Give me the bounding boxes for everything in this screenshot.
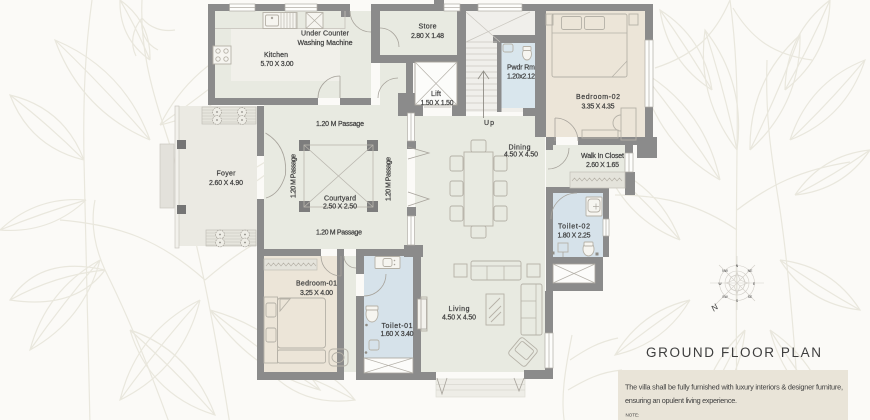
svg-text:Kitchen: Kitchen	[264, 52, 288, 59]
svg-text:SE: SE	[748, 295, 753, 299]
svg-text:2.80 X 1.48: 2.80 X 1.48	[411, 33, 444, 40]
svg-text:2.60 X 1.65: 2.60 X 1.65	[586, 162, 619, 169]
svg-text:1.20 M Passage: 1.20 M Passage	[316, 121, 364, 128]
svg-text:Toilet-02: Toilet-02	[558, 224, 590, 231]
svg-text:Dining: Dining	[509, 144, 531, 151]
svg-text:The villa shall be fully furni: The villa shall be fully furnished with …	[625, 383, 843, 392]
svg-text:ensuring an opulent living exp: ensuring an opulent living experience.	[625, 396, 737, 405]
svg-text:1.20 M Passage: 1.20 M Passage	[386, 157, 393, 201]
svg-text:Courtyard: Courtyard	[324, 196, 356, 203]
svg-text:Washing Machine: Washing Machine	[298, 40, 353, 47]
svg-text:2.50 X 2.50: 2.50 X 2.50	[323, 204, 357, 211]
svg-text:NE: NE	[748, 269, 753, 273]
svg-text:NOTE:: NOTE:	[626, 413, 640, 418]
svg-text:Pwdr Rm: Pwdr Rm	[507, 65, 535, 72]
svg-text:Up: Up	[484, 120, 494, 127]
svg-text:Living: Living	[449, 306, 470, 313]
svg-text:1.20x2.12: 1.20x2.12	[507, 74, 535, 81]
svg-text:Walk In Closet: Walk In Closet	[581, 153, 624, 160]
svg-text:3.35 X 4.35: 3.35 X 4.35	[582, 104, 615, 111]
svg-text:Bedroom-01: Bedroom-01	[296, 281, 337, 288]
svg-text:SW: SW	[722, 295, 728, 299]
svg-text:4.50 X 4.50: 4.50 X 4.50	[504, 152, 538, 159]
svg-text:Foyer: Foyer	[217, 171, 237, 178]
svg-text:NW: NW	[722, 269, 728, 273]
svg-text:1.80 X 2.25: 1.80 X 2.25	[558, 233, 591, 240]
svg-text:1.60 X 3.40: 1.60 X 3.40	[381, 331, 414, 338]
svg-text:Lift: Lift	[431, 91, 441, 98]
svg-text:3.25 X 4.00: 3.25 X 4.00	[300, 290, 333, 297]
svg-text:1.20 M Passage: 1.20 M Passage	[291, 154, 298, 198]
svg-text:Store: Store	[419, 24, 437, 31]
svg-text:1.20 M Passage: 1.20 M Passage	[316, 230, 362, 237]
svg-text:1.50 X 1.50: 1.50 X 1.50	[421, 100, 454, 107]
svg-text:GROUND FLOOR PLAN: GROUND FLOOR PLAN	[646, 345, 821, 360]
svg-text:Bedroom-02: Bedroom-02	[576, 94, 620, 101]
svg-text:Toilet-01: Toilet-01	[382, 323, 413, 330]
svg-text:4.50 X 4.50: 4.50 X 4.50	[442, 314, 476, 321]
svg-text:2.60 X 4.90: 2.60 X 4.90	[209, 180, 243, 187]
svg-text:Under Counter: Under Counter	[301, 31, 350, 38]
svg-text:5.70 X 3.00: 5.70 X 3.00	[261, 61, 294, 68]
